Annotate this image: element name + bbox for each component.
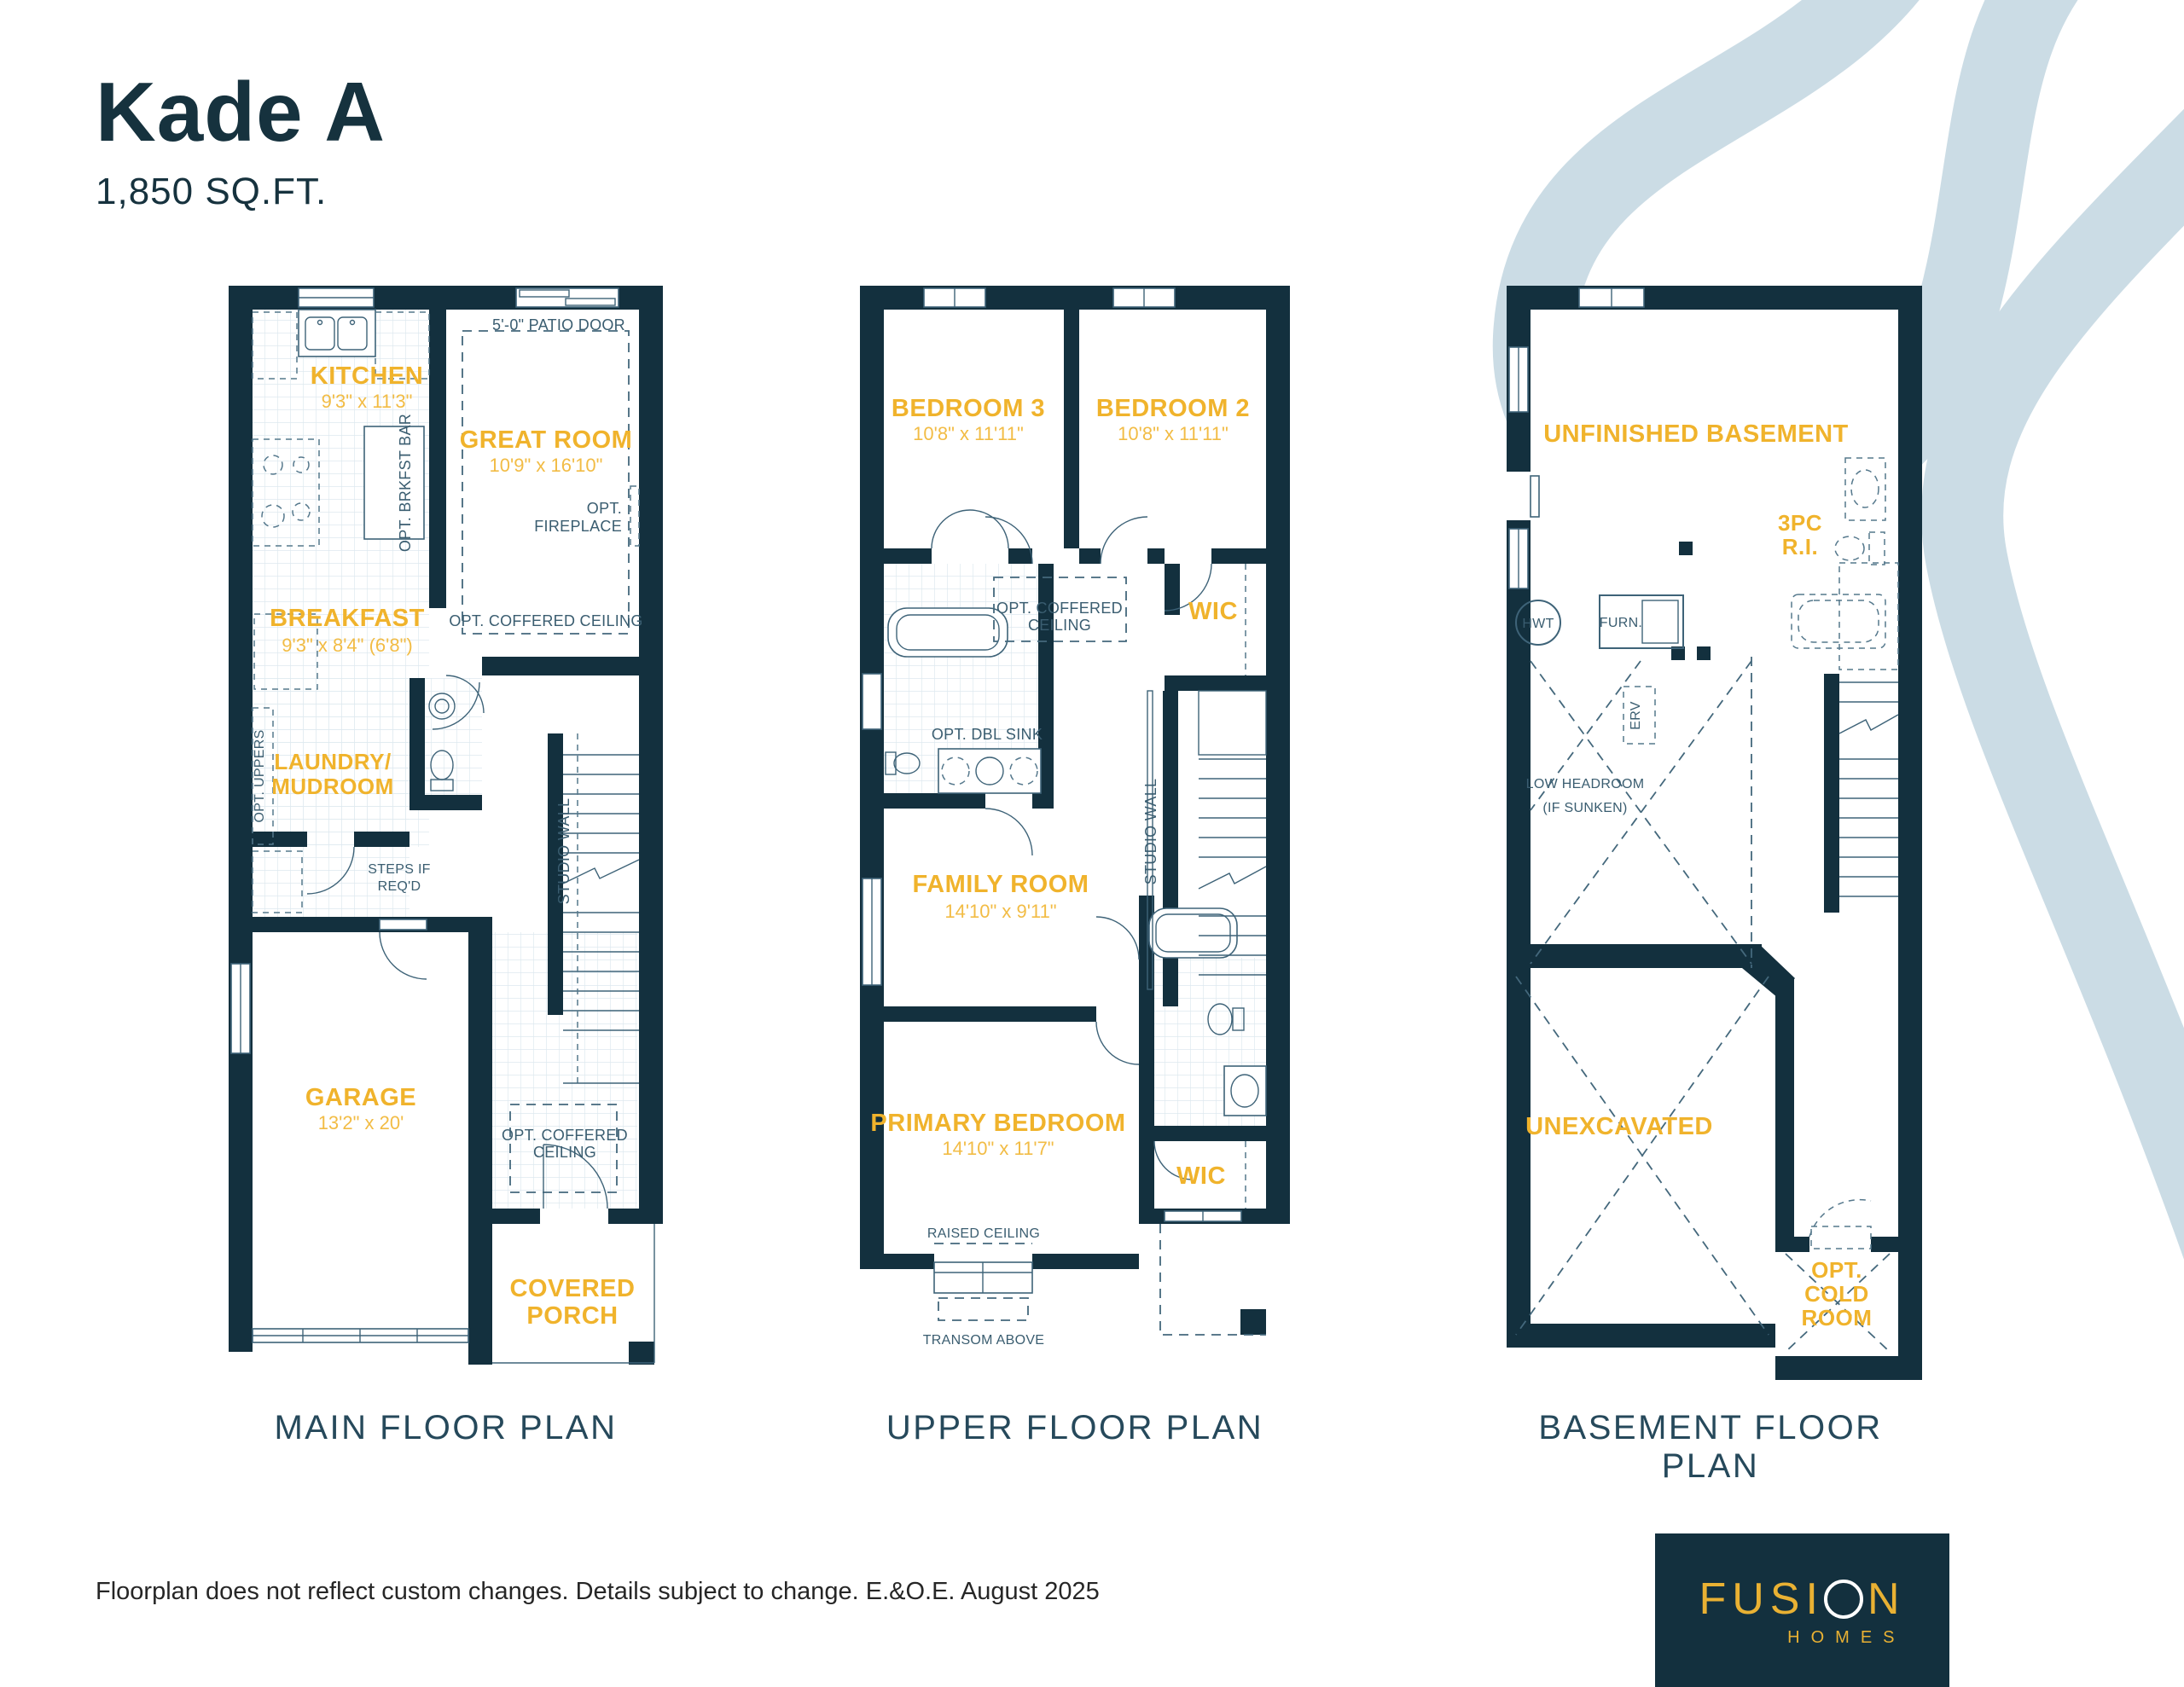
laundry-label-1: LAUNDRY/ [274, 749, 391, 774]
upper-coffered-note-2: CEILING [1028, 617, 1091, 634]
logo-inner: FUSI N HOMES [1699, 1574, 1905, 1648]
transom-note: TRANSOM ABOVE [923, 1333, 1045, 1348]
fireplace-note-1: OPT. [587, 500, 622, 517]
garage-label: GARAGE [305, 1084, 416, 1111]
fusion-homes-logo: FUSI N HOMES [1655, 1533, 1949, 1687]
porch-label-1: COVERED [510, 1275, 636, 1302]
floorplan-sheet: Kade A 1,850 SQ.FT. [0, 0, 2184, 1687]
kitchen-dims: 9'3" x 11'3" [322, 391, 413, 412]
studio-wall-note: STUDIO WALL [555, 798, 572, 905]
family-room-dims: 14'10" x 9'11" [944, 901, 1056, 922]
cold-room-label-1: OPT. [1811, 1257, 1862, 1283]
dbl-sink-note: OPT. DBL SINK [932, 726, 1043, 743]
raised-ceiling-note: RAISED CEILING [927, 1226, 1040, 1241]
upper-floor-plan: BEDROOM 3 10'8" x 11'11" BEDROOM 2 10'8"… [857, 281, 1292, 1382]
bedroom2-label: BEDROOM 2 [1096, 395, 1250, 422]
wic-hall-label: WIC [1188, 598, 1238, 625]
primary-bedroom-label: PRIMARY BEDROOM [870, 1110, 1125, 1137]
coffered-great-note: OPT. COFFERED CEILING [449, 612, 642, 629]
great-room-dims: 10'9" x 16'10" [490, 455, 603, 476]
brkfst-bar-note: OPT. BRKFST BAR [397, 414, 414, 552]
cold-room-label-3: ROOM [1802, 1305, 1873, 1330]
great-room-label: GREAT ROOM [460, 426, 633, 454]
unexcavated-label: UNEXCAVATED [1525, 1113, 1713, 1140]
patio-door-note: 5'-0" PATIO DOOR [492, 316, 625, 333]
hwt-label: HWT [1522, 617, 1554, 631]
fireplace-note-2: FIREPLACE [534, 518, 622, 535]
square-footage: 1,850 SQ.FT. [96, 171, 386, 213]
header: Kade A 1,850 SQ.FT. [96, 70, 386, 213]
furn-label: FURN. [1600, 616, 1642, 630]
breakfast-label: BREAKFAST [270, 605, 425, 632]
primary-bedroom-dims: 14'10" x 11'7" [942, 1138, 1054, 1159]
laundry-label-2: MUDROOM [271, 774, 394, 799]
logo-text-part1: FUSI [1699, 1574, 1823, 1625]
unfinished-basement-label: UNFINISHED BASEMENT [1543, 420, 1849, 448]
porch-label-2: PORCH [526, 1302, 618, 1330]
upper-studio-wall-note: STUDIO WALL [1142, 779, 1159, 885]
kitchen-label: KITCHEN [311, 362, 423, 390]
model-name: Kade A [96, 70, 386, 154]
steps-note-1: STEPS IF [368, 862, 431, 877]
cold-room-label-2: COLD [1804, 1281, 1869, 1307]
upper-coffered-note-1: OPT. COFFERED [996, 600, 1123, 617]
family-room-label: FAMILY ROOM [913, 871, 1089, 898]
3pc-ri-label-1: 3PC [1778, 510, 1822, 536]
logo-sub-wordmark: HOMES [1699, 1628, 1905, 1648]
bedroom3-label: BEDROOM 3 [892, 395, 1045, 422]
basement-floor-plan: UNFINISHED BASEMENT 3PC R.I. UNEXCAVATED… [1504, 281, 1969, 1382]
coffered-foyer-note-2: CEILING [533, 1144, 596, 1161]
bedroom3-dims: 10'8" x 11'11" [913, 423, 1024, 444]
logo-wordmark: FUSI N [1699, 1574, 1905, 1625]
opt-uppers-note: OPT. UPPERS [253, 729, 267, 822]
breakfast-dims: 9'3" x 8'4" (6'8") [282, 635, 412, 656]
garage-dims: 13'2" x 20' [318, 1112, 404, 1133]
erv-label: ERV [1629, 701, 1643, 730]
basement-floor-plan-title: BASEMENT FLOOR PLAN [1489, 1409, 1932, 1486]
low-headroom-note-2: (IF SUNKEN) [1542, 801, 1627, 815]
wic-primary-label: WIC [1176, 1162, 1226, 1190]
low-headroom-note-1: LOW HEADROOM [1526, 777, 1645, 791]
main-floor-plan-title: MAIN FLOOR PLAN [226, 1409, 665, 1447]
bedroom2-dims: 10'8" x 11'11" [1118, 423, 1228, 444]
basement-footprint [1507, 286, 1922, 1380]
coffered-foyer-note-1: OPT. COFFERED [502, 1127, 628, 1144]
logo-text-part2: N [1867, 1574, 1906, 1625]
upper-floor-plan-title: UPPER FLOOR PLAN [857, 1409, 1292, 1447]
disclaimer: Floorplan does not reflect custom change… [96, 1578, 1100, 1606]
steps-note-2: REQ'D [378, 879, 421, 894]
3pc-ri-label-2: R.I. [1782, 534, 1818, 559]
main-floor-plan: KITCHEN 9'3" x 11'3" GREAT ROOM 10'9" x … [226, 281, 665, 1382]
logo-o-ring-icon [1824, 1580, 1863, 1619]
